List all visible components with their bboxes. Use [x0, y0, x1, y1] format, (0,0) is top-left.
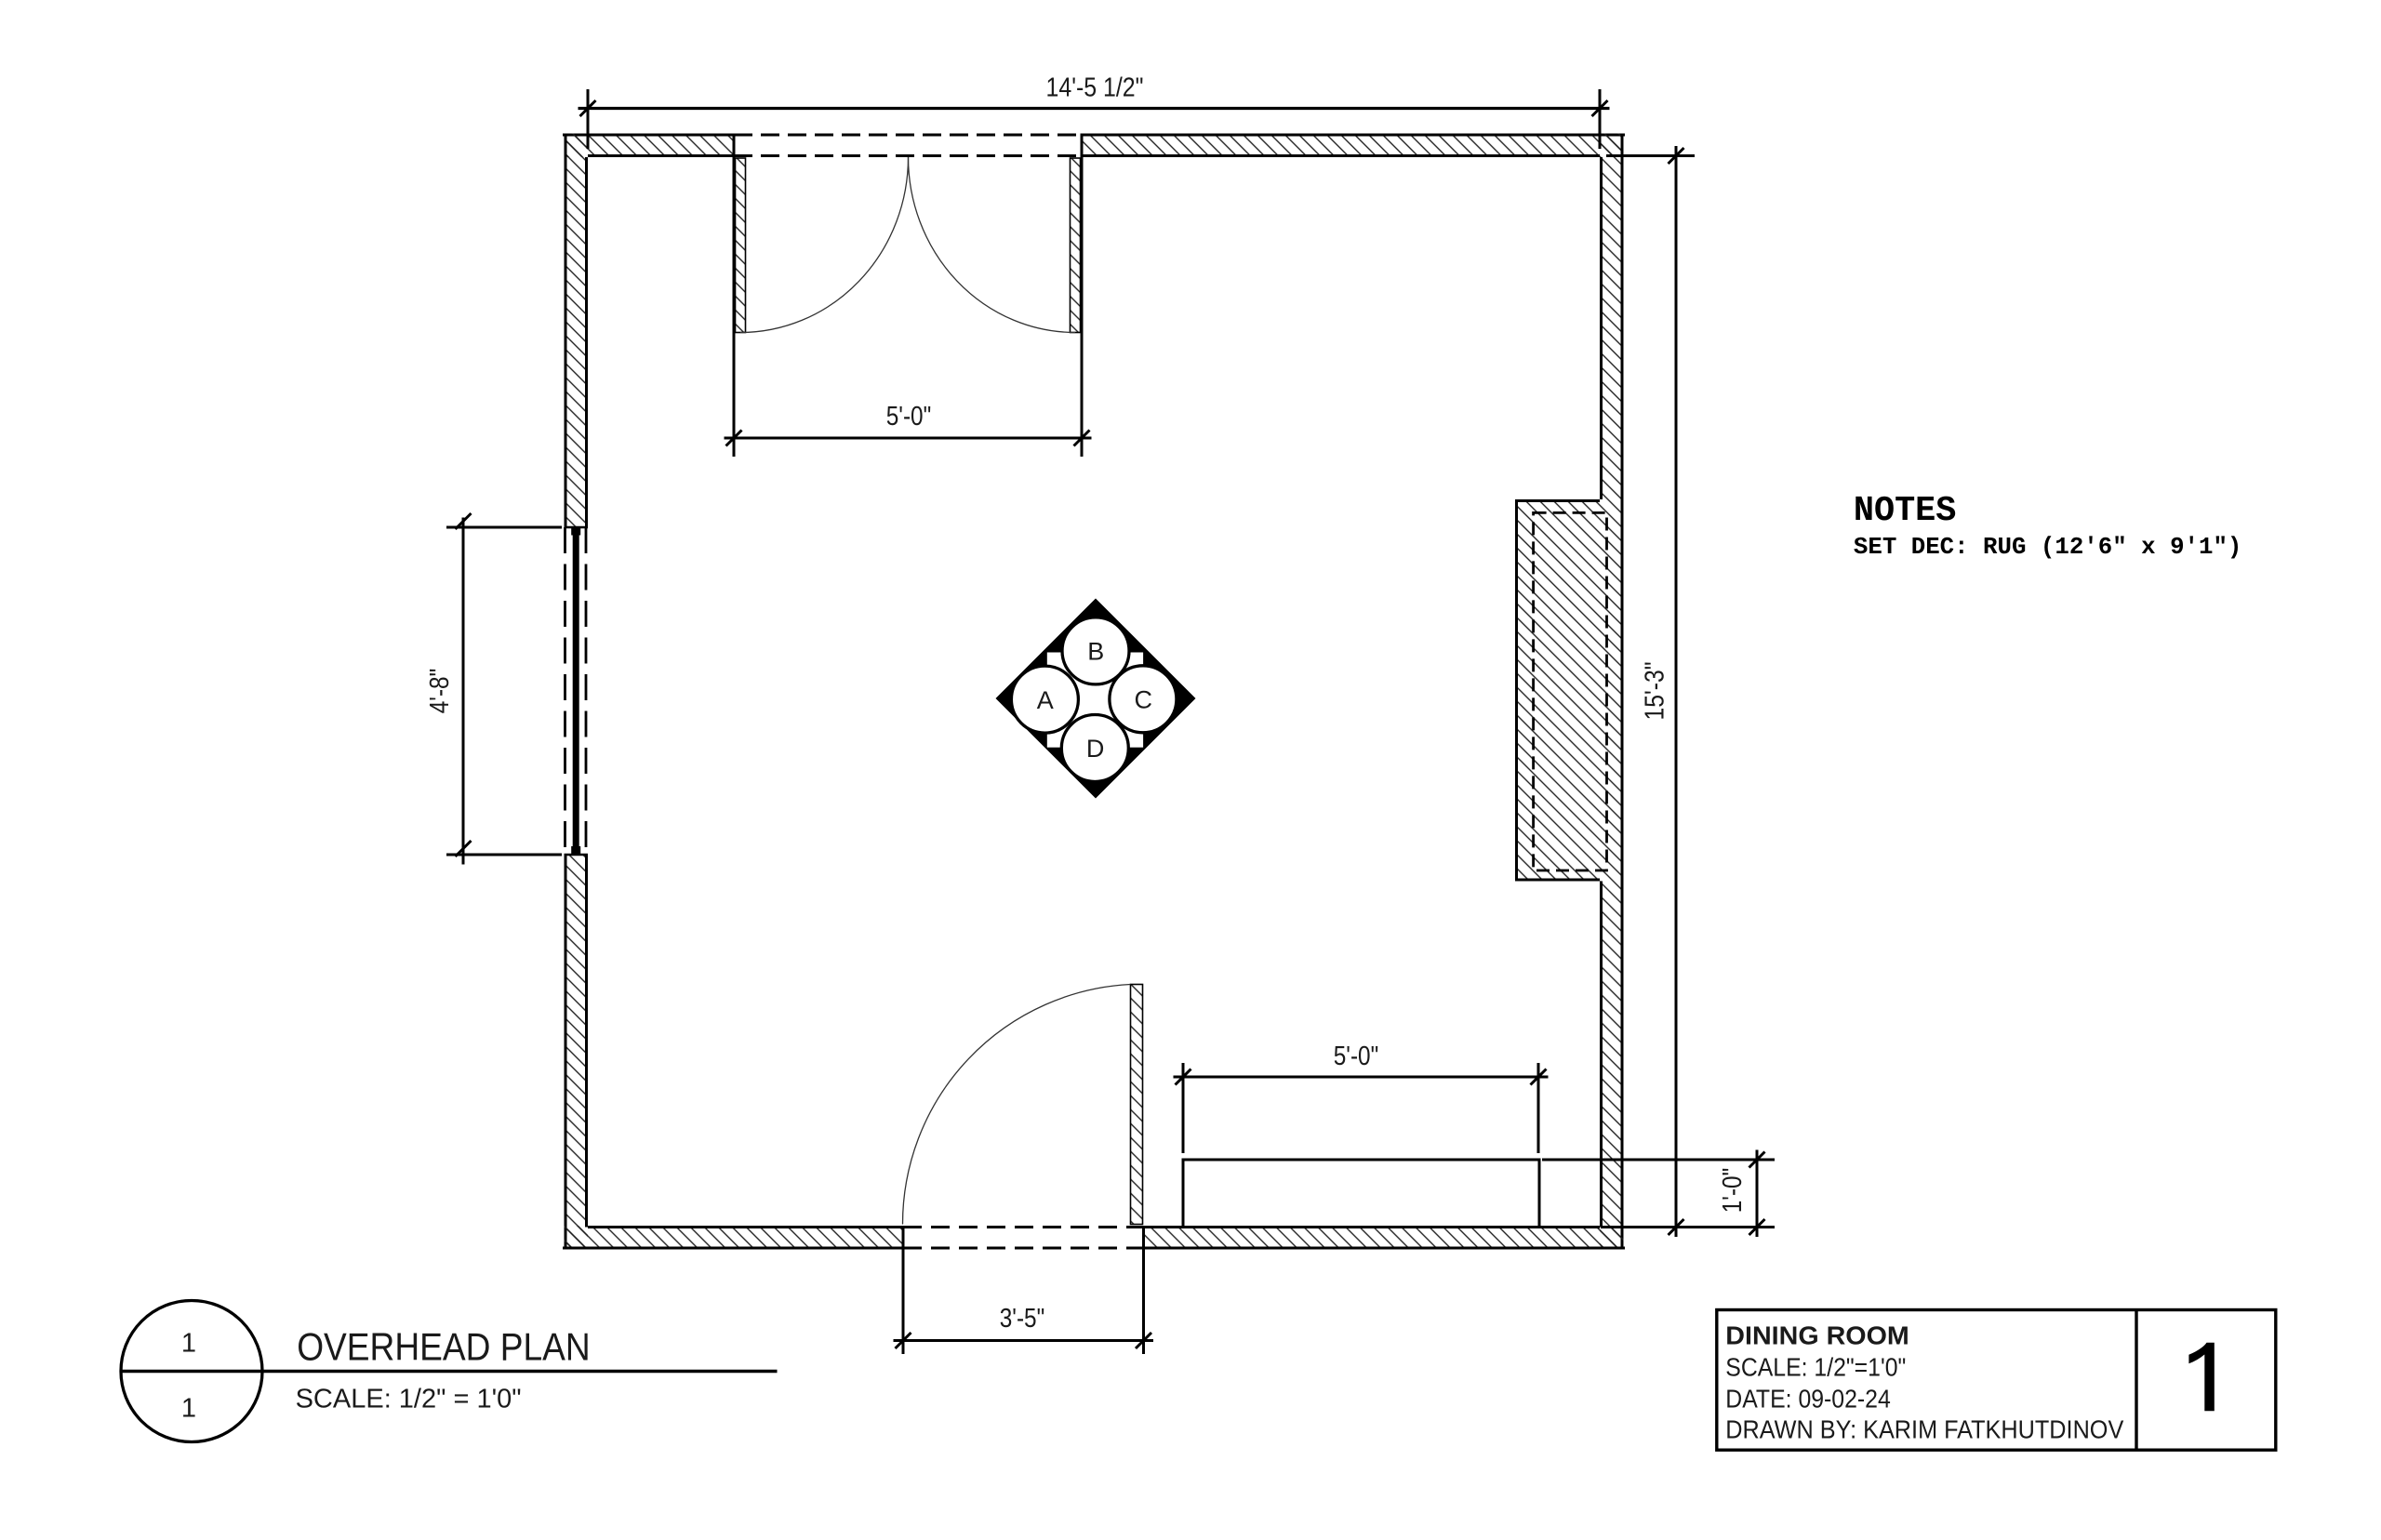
svg-text:1: 1 [181, 1329, 196, 1359]
svg-text:14'-5 1/2": 14'-5 1/2" [1046, 73, 1144, 103]
svg-text:SCALE: 1/2"=1'0": SCALE: 1/2"=1'0" [1725, 1353, 1906, 1382]
svg-text:SET DEC: RUG (12'6" x 9'1"): SET DEC: RUG (12'6" x 9'1") [1854, 534, 2241, 561]
svg-text:D: D [1086, 735, 1105, 763]
svg-text:5'-0": 5'-0" [886, 402, 932, 431]
svg-text:B: B [1087, 638, 1104, 666]
svg-text:5'-0": 5'-0" [1334, 1042, 1379, 1071]
svg-text:3'-5": 3'-5" [1000, 1304, 1045, 1334]
svg-text:1: 1 [181, 1394, 196, 1424]
svg-text:NOTES: NOTES [1854, 491, 1956, 531]
svg-text:15'-3": 15'-3" [1641, 662, 1670, 721]
svg-text:1'-0": 1'-0" [1718, 1168, 1748, 1214]
svg-text:C: C [1134, 686, 1152, 714]
svg-text:OVERHEAD PLAN: OVERHEAD PLAN [297, 1324, 591, 1368]
svg-text:DRAWN BY: KARIM FATKHUTDINOV: DRAWN BY: KARIM FATKHUTDINOV [1725, 1415, 2123, 1444]
svg-text:4'-8": 4'-8" [425, 669, 455, 714]
svg-text:DINING ROOM: DINING ROOM [1725, 1321, 1909, 1350]
svg-text:DATE: 09-02-24: DATE: 09-02-24 [1725, 1385, 1891, 1414]
svg-text:SCALE: 1/2" = 1'0": SCALE: 1/2" = 1'0" [296, 1385, 522, 1414]
svg-text:A: A [1037, 686, 1054, 714]
